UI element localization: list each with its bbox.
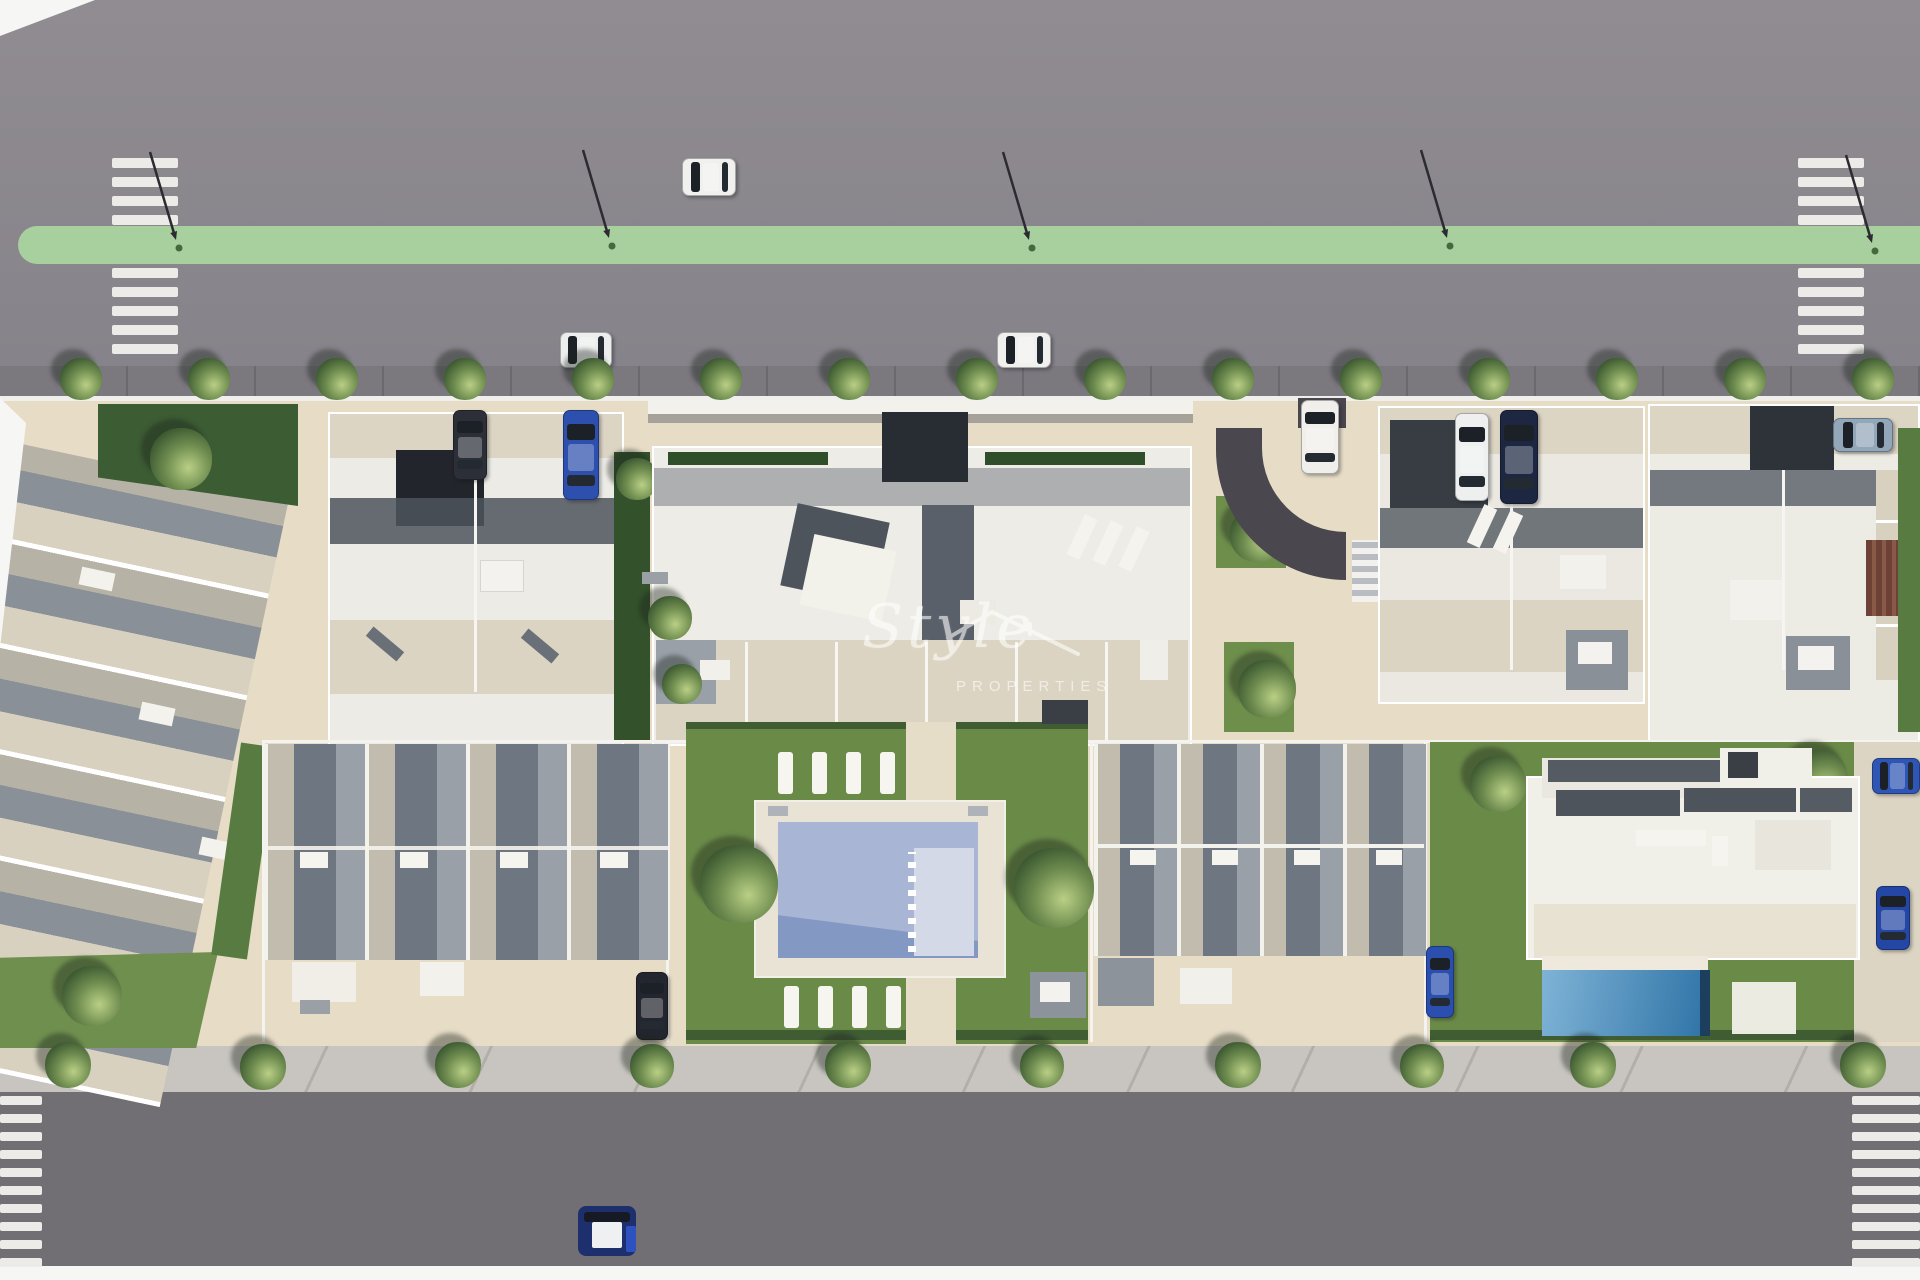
car-parked-top-2-roof-shine bbox=[1018, 337, 1034, 363]
car-b4-silver-windshield bbox=[1843, 422, 1853, 448]
car-bottom-roof bbox=[592, 1222, 622, 1248]
street-tree-top-12 bbox=[1468, 358, 1510, 400]
tree-courtyard-2 bbox=[662, 664, 702, 704]
car-white-top-road-roof-shine bbox=[703, 163, 719, 191]
row2-left-box-3 bbox=[500, 852, 528, 868]
building4-table bbox=[1730, 580, 1782, 620]
street-tree-top-10 bbox=[1212, 358, 1254, 400]
building4-court-table bbox=[1798, 646, 1834, 670]
car-villa-blue-side-roof-shine bbox=[1881, 910, 1905, 929]
van-building1-dark-rear-glass bbox=[457, 460, 483, 468]
row2-right-box-4 bbox=[1376, 850, 1402, 865]
central-furniture-3 bbox=[1140, 640, 1168, 680]
car-white-top-road-windshield bbox=[691, 162, 700, 192]
street-tree-top-8 bbox=[956, 358, 998, 400]
building4-entry-court bbox=[1750, 406, 1834, 470]
top-road bbox=[0, 0, 1920, 368]
crosswalk-top-left-lower-stripe-1 bbox=[112, 268, 178, 278]
pool-lounger-bot-3 bbox=[852, 986, 867, 1028]
bottom-margin bbox=[0, 1266, 1920, 1280]
crosswalk-bottom-right-stripe-6 bbox=[1852, 1186, 1920, 1195]
building1-roof-table bbox=[480, 560, 524, 592]
annotation-arrow-4 bbox=[1417, 146, 1461, 254]
street-tree-top-7 bbox=[828, 358, 870, 400]
street-tree-bottom-4 bbox=[630, 1044, 674, 1088]
row2-left-patio-gray bbox=[300, 1000, 330, 1014]
car-b3-white-rear-glass bbox=[1459, 476, 1485, 487]
villa-roof-furniture-2 bbox=[1712, 836, 1728, 866]
car-b3-white-windshield bbox=[1459, 427, 1485, 442]
car-b4-silver-rear-glass bbox=[1877, 422, 1884, 448]
pool-lounger-top-2 bbox=[812, 752, 827, 794]
row2-right-box-1 bbox=[1130, 850, 1156, 865]
villa-solar-1 bbox=[1556, 790, 1680, 816]
crosswalk-bottom-right-stripe-7 bbox=[1852, 1204, 1920, 1213]
street-tree-bottom-5 bbox=[825, 1042, 871, 1088]
crosswalk-top-left-lower-stripe-4 bbox=[112, 325, 178, 335]
crosswalk-bottom-left-stripe-9 bbox=[0, 1240, 42, 1249]
crosswalk-bottom-left-stripe-8 bbox=[0, 1222, 42, 1231]
car-b3-navy-windshield bbox=[1504, 425, 1534, 441]
car-b3-navy-roof-shine bbox=[1505, 446, 1533, 474]
pool-lounger-top-3 bbox=[846, 752, 861, 794]
van-building1-dark-windshield bbox=[457, 421, 483, 433]
street-tree-bottom-7 bbox=[1215, 1042, 1261, 1088]
annotation-arrow-3 bbox=[999, 148, 1043, 256]
courtyard-bench bbox=[642, 572, 668, 584]
central-furniture-1 bbox=[700, 660, 730, 680]
street-tree-top-14 bbox=[1724, 358, 1766, 400]
pool-platform bbox=[914, 848, 974, 956]
van-curve-white-roof-shine bbox=[1306, 428, 1334, 450]
villa-terrace bbox=[1534, 904, 1856, 958]
car-plot-blue-roof-shine bbox=[1431, 973, 1449, 995]
building3-court-table bbox=[1578, 642, 1612, 664]
pool-lounger-bot-1 bbox=[784, 986, 799, 1028]
crosswalk-bottom-right-stripe-9 bbox=[1852, 1240, 1920, 1249]
car-parked-top-2-rear-glass bbox=[1037, 336, 1043, 364]
central-hedge-left bbox=[668, 452, 828, 465]
tree-lawn-right-2 bbox=[1238, 660, 1296, 718]
crosswalk-bottom-right-stripe-4 bbox=[1852, 1150, 1920, 1159]
row2-right-midline bbox=[1096, 844, 1424, 848]
crosswalk-top-right-lower-stripe-1 bbox=[1798, 268, 1864, 278]
row2-left-midline bbox=[266, 846, 668, 850]
street-tree-bottom-2 bbox=[240, 1044, 286, 1090]
tree-pool-left bbox=[700, 845, 778, 923]
crosswalk-bottom-left-stripe-3 bbox=[0, 1132, 42, 1141]
car-row2-left-dark-rear-glass bbox=[640, 1021, 664, 1029]
car-b3-navy-rear-glass bbox=[1504, 478, 1534, 489]
annotation-arrow-5 bbox=[1842, 151, 1886, 259]
annotation-arrow-2 bbox=[579, 146, 623, 254]
central-furniture-2 bbox=[960, 600, 996, 624]
row2-right-box-2 bbox=[1212, 850, 1238, 865]
car-bottom-windshield bbox=[584, 1212, 630, 1222]
car-white-top-road-rear-glass bbox=[722, 162, 728, 192]
villa-roof-furniture-1 bbox=[1636, 830, 1706, 846]
car-building1-blue-windshield bbox=[567, 424, 595, 439]
car-villa-blue-top-roof-shine bbox=[1890, 763, 1904, 789]
pool-steps bbox=[908, 852, 916, 952]
street-tree-bottom-1 bbox=[45, 1042, 91, 1088]
van-curve-white-rear-glass bbox=[1305, 453, 1335, 462]
tree-pool-right bbox=[1014, 848, 1094, 928]
street-tree-top-13 bbox=[1596, 358, 1638, 400]
pool-lounger-bot-4 bbox=[886, 986, 901, 1028]
villa-solar-2 bbox=[1684, 788, 1796, 812]
car-building1-blue-rear-glass bbox=[567, 475, 595, 486]
pool-lawn-hedge-top bbox=[686, 722, 1088, 729]
row2-left-box-1 bbox=[300, 852, 328, 868]
crosswalk-bottom-right-stripe-10 bbox=[1852, 1258, 1920, 1267]
building4-divider bbox=[1782, 470, 1785, 670]
row2-right-pergola bbox=[1098, 958, 1154, 1006]
tree-top-left-lawn bbox=[150, 428, 212, 490]
villa-pool-edge-dark bbox=[1700, 970, 1710, 1036]
pool-lounger-top-4 bbox=[880, 752, 895, 794]
pool-lounger-bot-2 bbox=[818, 986, 833, 1028]
green-bike-lane bbox=[18, 226, 1920, 264]
row2-right-table bbox=[1180, 968, 1232, 1004]
crosswalk-bottom-left-stripe-2 bbox=[0, 1114, 42, 1123]
crosswalk-top-right-lower-stripe-4 bbox=[1798, 325, 1864, 335]
car-row2-left-dark-roof-shine bbox=[641, 998, 663, 1018]
crosswalk-bottom-left-stripe-5 bbox=[0, 1168, 42, 1177]
crosswalk-top-left-lower-stripe-5 bbox=[112, 344, 178, 354]
crosswalk-bottom-right-stripe-1 bbox=[1852, 1096, 1920, 1105]
row2-right-box-3 bbox=[1294, 850, 1320, 865]
row2-left-patio-furniture bbox=[292, 962, 356, 1002]
pool-pergola-top bbox=[1042, 700, 1088, 724]
central-entry-court bbox=[882, 412, 968, 482]
site-plan-render: Style PROPERTIES bbox=[0, 0, 1920, 1280]
villa-wing-roofstrip bbox=[1548, 760, 1732, 782]
street-tree-top-15 bbox=[1852, 358, 1894, 400]
car-b4-silver-roof-shine bbox=[1856, 423, 1874, 447]
car-bottom-accent bbox=[626, 1226, 636, 1252]
villa-court-block bbox=[1728, 752, 1758, 778]
car-b3-white-roof-shine bbox=[1460, 446, 1484, 472]
street-tree-bottom-10 bbox=[1840, 1042, 1886, 1088]
central-terrace-div-5 bbox=[1105, 642, 1108, 740]
car-villa-blue-side-windshield bbox=[1880, 896, 1906, 907]
crosswalk-bottom-right-stripe-5 bbox=[1852, 1168, 1920, 1177]
row2-left-box-4 bbox=[600, 852, 628, 868]
building3-table bbox=[1560, 555, 1606, 589]
lawn-right-edge bbox=[1898, 428, 1920, 732]
scene-layers bbox=[0, 0, 1920, 1280]
street-tree-top-11 bbox=[1340, 358, 1382, 400]
villa-solar-3 bbox=[1800, 788, 1852, 812]
crosswalk-bottom-right-stripe-3 bbox=[1852, 1132, 1920, 1141]
row2-left-box-2 bbox=[400, 852, 428, 868]
tree-bottom-left-lawn bbox=[62, 966, 122, 1026]
bottom-sidewalk bbox=[0, 1046, 1920, 1092]
car-villa-blue-top-windshield bbox=[1880, 762, 1888, 790]
street-tree-bottom-8 bbox=[1400, 1044, 1444, 1088]
pool-bench-2 bbox=[968, 806, 988, 816]
pool-pergola-table bbox=[1040, 982, 1070, 1002]
pool-lounger-top-1 bbox=[778, 752, 793, 794]
crosswalk-bottom-left-stripe-4 bbox=[0, 1150, 42, 1159]
crosswalk-bottom-left-stripe-10 bbox=[0, 1258, 42, 1267]
car-plot-blue-windshield bbox=[1430, 958, 1450, 970]
van-curve-white-windshield bbox=[1305, 412, 1335, 425]
villa-patio-furniture bbox=[1732, 982, 1796, 1034]
street-tree-bottom-3 bbox=[435, 1042, 481, 1088]
villa-roof-lounge bbox=[1755, 820, 1831, 870]
street-tree-top-5 bbox=[572, 358, 614, 400]
car-villa-blue-top-rear-glass bbox=[1908, 762, 1913, 790]
pool-bench-1 bbox=[768, 806, 788, 816]
bottom-road bbox=[0, 1092, 1920, 1270]
crosswalk-top-left-lower-stripe-3 bbox=[112, 306, 178, 316]
tree-villa-lawn-left bbox=[1470, 756, 1526, 812]
crosswalk-bottom-left-stripe-7 bbox=[0, 1204, 42, 1213]
van-building1-dark-roof-shine bbox=[458, 437, 482, 458]
crosswalk-bottom-right-stripe-8 bbox=[1852, 1222, 1920, 1231]
street-tree-top-1 bbox=[60, 358, 102, 400]
street-tree-top-3 bbox=[316, 358, 358, 400]
central-hedge-right bbox=[985, 452, 1145, 465]
crosswalk-bottom-left-stripe-6 bbox=[0, 1186, 42, 1195]
row2-left-patio-table bbox=[420, 962, 464, 996]
car-parked-top-2-windshield bbox=[1006, 336, 1015, 364]
street-tree-top-2 bbox=[188, 358, 230, 400]
crosswalk-top-left-lower-stripe-2 bbox=[112, 287, 178, 297]
street-tree-top-6 bbox=[700, 358, 742, 400]
car-plot-blue-rear-glass bbox=[1430, 998, 1450, 1007]
street-tree-top-4 bbox=[444, 358, 486, 400]
tree-courtyard-1 bbox=[648, 596, 692, 640]
annotation-arrow-1 bbox=[146, 148, 190, 256]
street-tree-bottom-9 bbox=[1570, 1042, 1616, 1088]
crosswalk-top-right-lower-stripe-3 bbox=[1798, 306, 1864, 316]
car-building1-blue-roof-shine bbox=[568, 444, 594, 471]
crosswalk-bottom-right-stripe-2 bbox=[1852, 1114, 1920, 1123]
street-tree-bottom-6 bbox=[1020, 1044, 1064, 1088]
street-tree-top-9 bbox=[1084, 358, 1126, 400]
villa-pool bbox=[1542, 970, 1708, 1036]
car-villa-blue-side-rear-glass bbox=[1880, 932, 1906, 940]
car-row2-left-dark-windshield bbox=[640, 983, 664, 995]
crosswalk-bottom-left-stripe-1 bbox=[0, 1096, 42, 1105]
building1-divider bbox=[474, 452, 477, 692]
crosswalk-top-right-lower-stripe-2 bbox=[1798, 287, 1864, 297]
